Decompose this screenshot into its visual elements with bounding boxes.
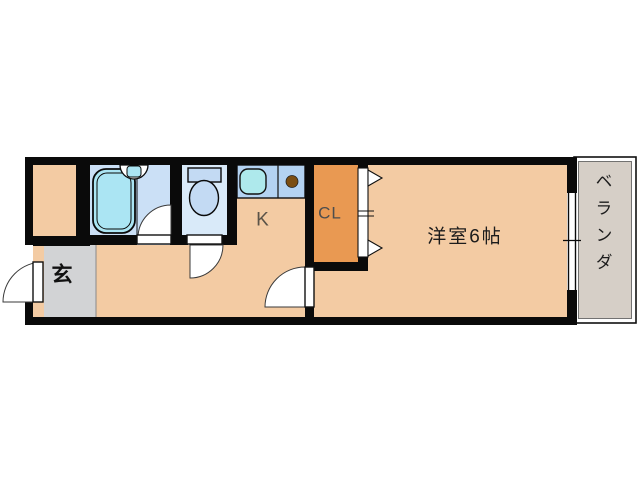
veranda-label: ベランダ bbox=[594, 172, 611, 280]
toilet-fixture bbox=[188, 168, 221, 216]
wall-right-lower bbox=[567, 290, 577, 325]
toilet-bowl-icon bbox=[190, 181, 219, 216]
wall-bottom bbox=[25, 317, 577, 325]
room-door-leaf bbox=[305, 267, 314, 307]
western-room-label: 洋室6帖 bbox=[427, 228, 503, 247]
wall-top bbox=[25, 157, 577, 165]
wall-kitchen-room-lower bbox=[305, 307, 314, 325]
wall-bath-toilet bbox=[170, 157, 182, 245]
toilet-door-leaf bbox=[187, 235, 222, 244]
kitchen-sink-icon bbox=[240, 169, 266, 194]
wall-storage-bottom bbox=[25, 236, 90, 246]
wash-basin-bowl bbox=[127, 166, 141, 177]
floorplan-image: 玄 K CL 洋室6帖 ベランダ bbox=[0, 0, 640, 480]
wall-storage-right bbox=[76, 157, 90, 246]
floorplan-svg bbox=[0, 0, 640, 480]
wall-kitchen-room-upper bbox=[305, 157, 314, 267]
wall-closet-stub-bottom bbox=[358, 257, 368, 262]
closet-label: CL bbox=[318, 205, 342, 222]
closet-door-panel bbox=[358, 168, 368, 257]
kitchen-counter bbox=[237, 165, 305, 198]
wall-right-upper bbox=[567, 157, 577, 193]
entrance-label: 玄 bbox=[52, 265, 73, 286]
bathroom-door-leaf bbox=[137, 235, 171, 244]
wall-left-lower bbox=[25, 302, 33, 325]
entrance-door-leaf bbox=[33, 262, 43, 302]
wall-bath-bottom-left bbox=[90, 235, 137, 245]
wall-toilet-right bbox=[227, 157, 237, 245]
kitchen-label: K bbox=[256, 211, 270, 230]
wall-left-upper bbox=[25, 157, 33, 245]
stove-burner-icon bbox=[286, 176, 298, 188]
